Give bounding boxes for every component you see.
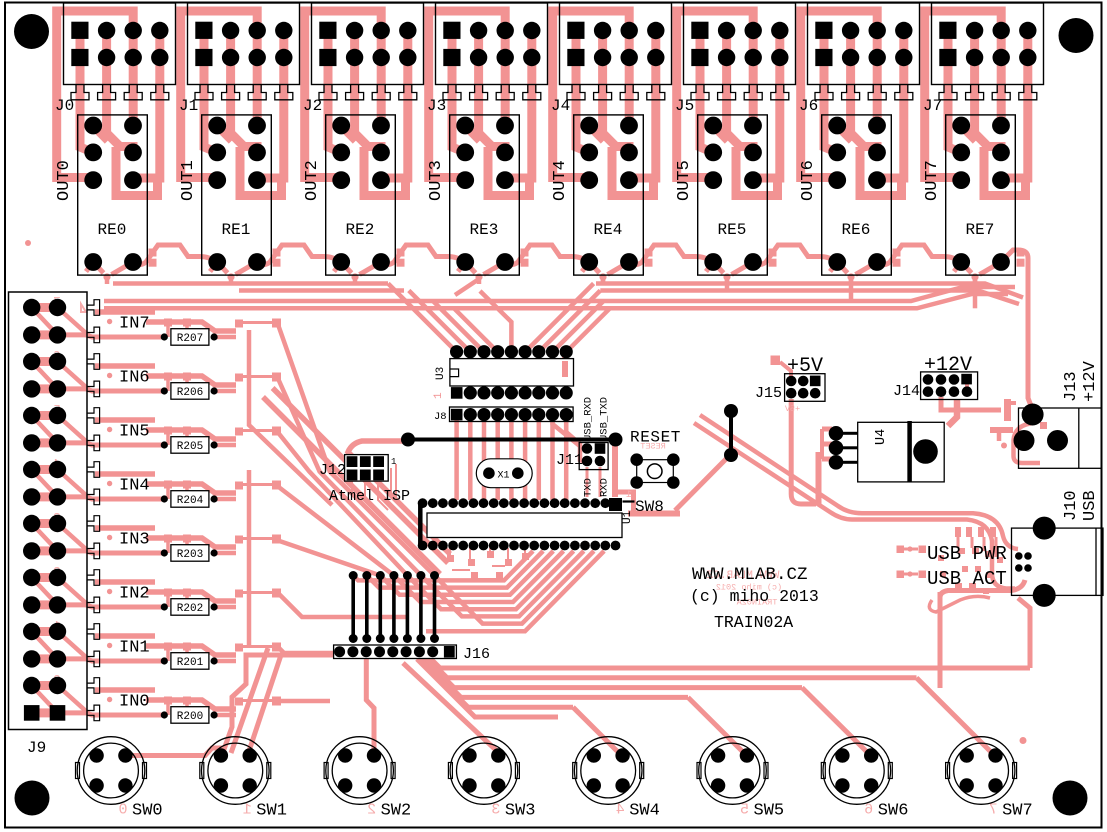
svg-text:3: 3 xyxy=(491,802,500,819)
svg-text:RE4: RE4 xyxy=(594,221,623,239)
svg-text:USB PWR: USB PWR xyxy=(927,543,1007,565)
svg-text:J8: J8 xyxy=(434,411,447,423)
svg-text:J6: J6 xyxy=(799,97,818,115)
svg-text:+12V: +12V xyxy=(1081,360,1100,402)
svg-text:RE2: RE2 xyxy=(346,221,375,239)
svg-text:1: 1 xyxy=(626,490,632,501)
svg-text:R204: R204 xyxy=(177,495,204,507)
svg-text:1: 1 xyxy=(391,457,396,467)
svg-text:RE7: RE7 xyxy=(966,221,995,239)
svg-text:IN0: IN0 xyxy=(119,693,150,712)
svg-text:2: 2 xyxy=(367,802,376,819)
svg-text:(c) miho 2013: (c) miho 2013 xyxy=(690,587,819,606)
svg-text:SW3: SW3 xyxy=(505,802,536,821)
svg-text:X1: X1 xyxy=(498,471,510,482)
svg-text:RESET: RESET xyxy=(630,429,681,447)
svg-text:RXD: RXD xyxy=(599,478,611,497)
svg-text:IN4: IN4 xyxy=(119,477,150,496)
svg-text:J13: J13 xyxy=(1062,371,1081,402)
svg-text:U4: U4 xyxy=(874,429,889,445)
svg-text:OUT2: OUT2 xyxy=(303,160,322,201)
svg-text:USB_RXD: USB_RXD xyxy=(583,397,595,441)
svg-text:1: 1 xyxy=(433,392,445,399)
svg-text:SW2: SW2 xyxy=(381,802,412,821)
svg-text:J1: J1 xyxy=(179,97,198,115)
svg-text:R203: R203 xyxy=(177,549,203,561)
svg-text:R200: R200 xyxy=(177,711,203,723)
svg-text:WWW.MLAB.CZ: WWW.MLAB.CZ xyxy=(692,565,808,585)
svg-text:1: 1 xyxy=(243,802,252,819)
svg-text:R201: R201 xyxy=(177,657,204,669)
svg-text:J16: J16 xyxy=(463,646,490,663)
svg-text:J5: J5 xyxy=(675,97,694,115)
svg-text:J3: J3 xyxy=(427,97,446,115)
svg-text:OUT6: OUT6 xyxy=(799,160,818,201)
svg-text:+5V: +5V xyxy=(787,355,823,378)
svg-text:R205: R205 xyxy=(177,441,203,453)
svg-text:SW4: SW4 xyxy=(629,802,660,821)
svg-text:R207: R207 xyxy=(177,333,203,345)
svg-text:J12: J12 xyxy=(319,462,346,479)
svg-text:+12V: +12V xyxy=(924,354,972,377)
svg-text:Atmel ISP: Atmel ISP xyxy=(329,488,410,505)
svg-text:J2: J2 xyxy=(303,97,322,115)
svg-text:SW0: SW0 xyxy=(132,802,163,821)
svg-text:OUT7: OUT7 xyxy=(923,160,942,201)
svg-text:+5V: +5V xyxy=(784,404,800,414)
svg-text:SW1: SW1 xyxy=(256,802,287,821)
svg-text:RE3: RE3 xyxy=(470,221,499,239)
svg-text:SW6: SW6 xyxy=(878,802,909,821)
svg-text:USB: USB xyxy=(1081,490,1100,521)
svg-text:OUT5: OUT5 xyxy=(675,160,694,201)
svg-text:J11: J11 xyxy=(556,452,583,469)
svg-text:OUT0: OUT0 xyxy=(55,160,74,201)
svg-text:RE6: RE6 xyxy=(842,221,871,239)
svg-text:IN7: IN7 xyxy=(119,315,150,334)
svg-text:SW5: SW5 xyxy=(754,802,785,821)
svg-text:5: 5 xyxy=(740,802,749,819)
svg-text:J10: J10 xyxy=(1062,490,1081,521)
svg-text:IN5: IN5 xyxy=(119,423,150,442)
svg-text:OUT1: OUT1 xyxy=(179,160,198,201)
svg-text:RE5: RE5 xyxy=(718,221,747,239)
svg-text:IN1: IN1 xyxy=(119,639,150,658)
svg-text:0: 0 xyxy=(118,802,127,819)
svg-text:R202: R202 xyxy=(177,603,203,615)
svg-text:RE1: RE1 xyxy=(222,221,251,239)
svg-text:IN6: IN6 xyxy=(119,369,150,388)
svg-text:U1: U1 xyxy=(622,510,634,524)
svg-text:J7: J7 xyxy=(923,97,942,115)
svg-text:J4: J4 xyxy=(551,97,570,115)
svg-text:J9: J9 xyxy=(27,739,46,757)
svg-text:RE0: RE0 xyxy=(98,221,127,239)
svg-text:R206: R206 xyxy=(177,387,203,399)
svg-text:USB ACT: USB ACT xyxy=(927,568,1007,590)
svg-text:J0: J0 xyxy=(55,97,74,115)
svg-text:USB_TXD: USB_TXD xyxy=(599,397,611,441)
svg-text:4: 4 xyxy=(616,802,625,819)
svg-text:IN2: IN2 xyxy=(119,585,150,604)
svg-text:SW7: SW7 xyxy=(1002,802,1033,821)
svg-text:IN3: IN3 xyxy=(119,531,150,550)
svg-text:U3: U3 xyxy=(435,367,447,380)
svg-text:7: 7 xyxy=(989,802,998,819)
svg-text:6: 6 xyxy=(864,802,873,819)
svg-text:OUT3: OUT3 xyxy=(427,160,446,201)
svg-text:TRAIN02A: TRAIN02A xyxy=(714,613,793,632)
svg-text:TXD: TXD xyxy=(583,478,595,497)
svg-text:J14: J14 xyxy=(893,383,920,400)
svg-text:SW8: SW8 xyxy=(635,498,664,516)
svg-text:J15: J15 xyxy=(755,385,782,402)
svg-text:OUT4: OUT4 xyxy=(551,160,570,201)
